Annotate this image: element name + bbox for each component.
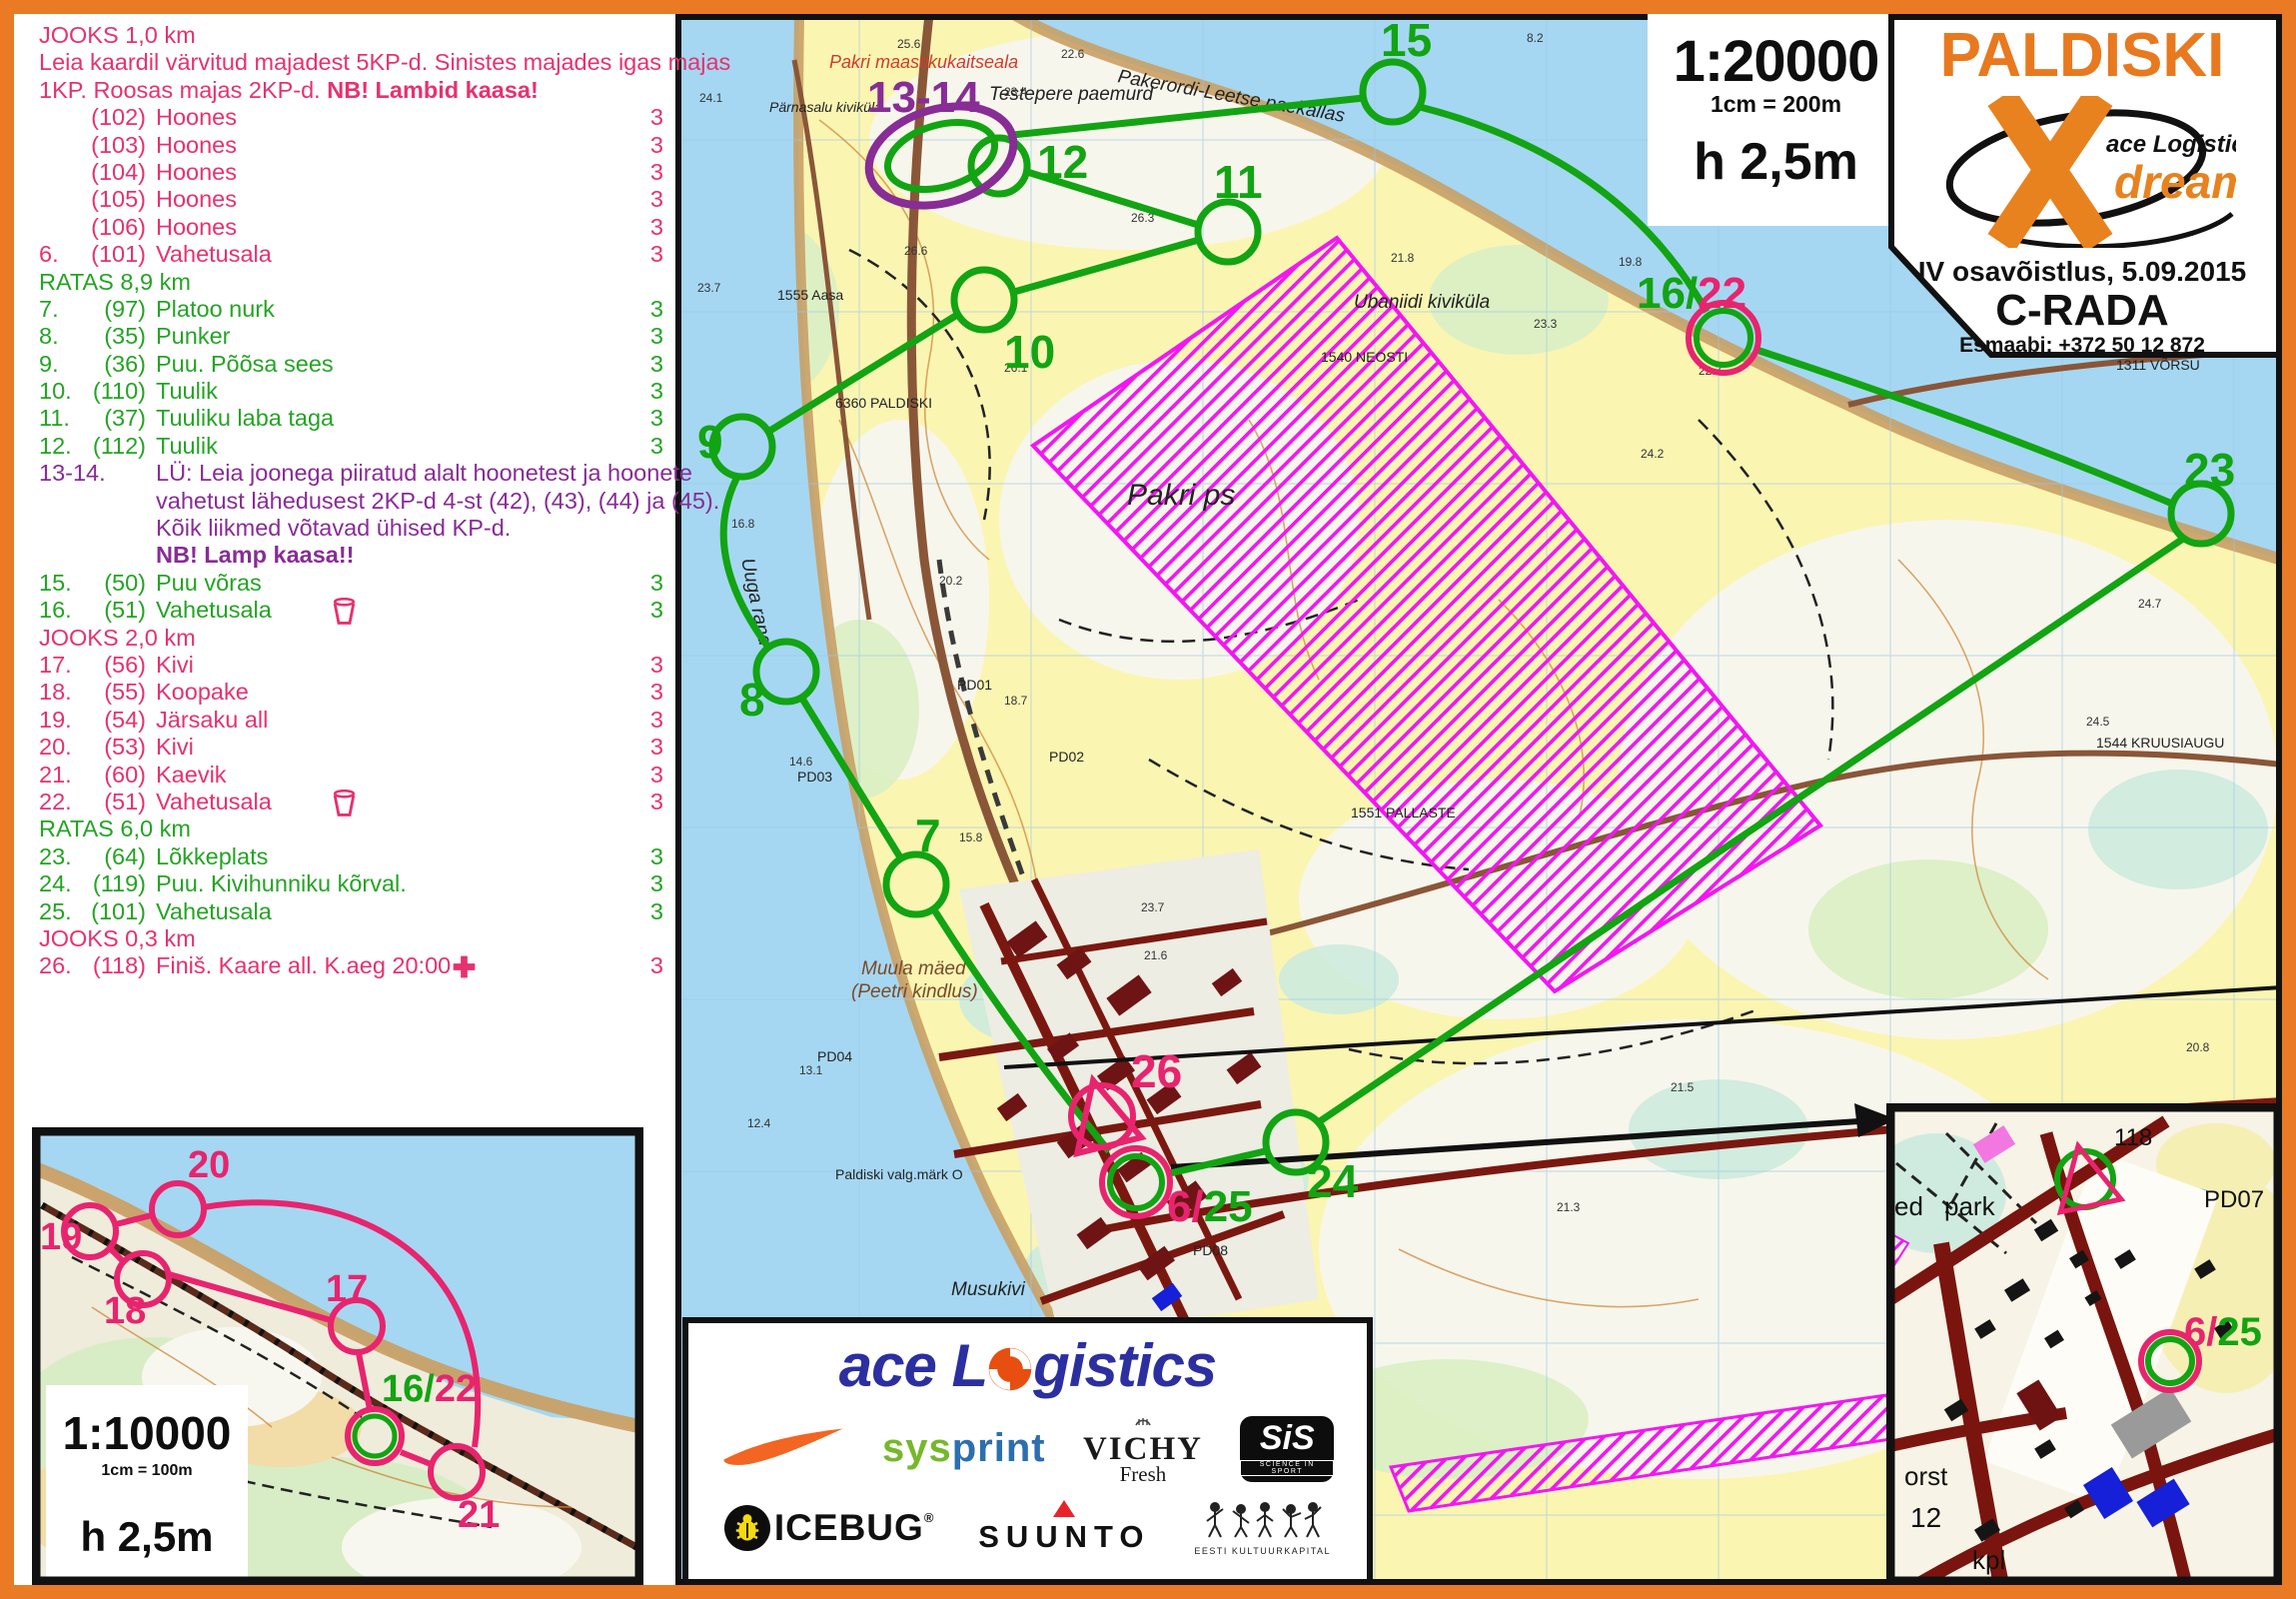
control-label-15: 15 xyxy=(1381,14,1432,66)
kultuurkapital-logo: EESTI KULTUURKAPITAL xyxy=(1194,1499,1331,1556)
label-pd07: PD07 xyxy=(2204,1186,2264,1213)
control-label-7: 7 xyxy=(915,809,941,861)
course-row: 1KP. Roosas majas 2KP-d. NB! Lambid kaas… xyxy=(14,77,675,104)
label-ed: ed xyxy=(1894,1191,1923,1221)
label-pd08: PD08 xyxy=(1193,1242,1228,1258)
ace-swirl-icon xyxy=(987,1346,1033,1392)
label-kpl: kpl xyxy=(1972,1545,2005,1575)
spot-height: 23.7 xyxy=(1141,900,1165,914)
course-row: 7.(97)Platoo nurk3 xyxy=(14,296,675,323)
label-musukivi: Musukivi xyxy=(951,1279,1026,1300)
course-row: 12.(112)Tuulik3 xyxy=(14,433,675,460)
course-row: 22.(51)Vahetusala3 xyxy=(14,789,675,815)
spot-height: 23.7 xyxy=(697,281,721,295)
sis-wordmark: SiS xyxy=(1240,1416,1334,1460)
spot-height: 20.2 xyxy=(939,574,963,588)
label-pakri-ps: Pakri ps xyxy=(1127,479,1235,512)
control-label-13-14: 13-14 xyxy=(867,73,980,122)
ace-logo-pre: ace L xyxy=(839,1332,987,1399)
course-section-header: RATAS 8,9 km xyxy=(14,269,675,296)
label-pd01: PD01 xyxy=(957,677,992,693)
spot-height: 18.7 xyxy=(1004,694,1028,708)
spot-height: 21.6 xyxy=(1144,948,1168,962)
course-row: (102)Hoones3 xyxy=(14,104,675,131)
spot-height: 15.8 xyxy=(959,830,983,844)
control-label-6-25: 6/25 xyxy=(1167,1182,1253,1231)
sysprint-logo: sysprint xyxy=(882,1426,1046,1471)
sponsors-panel: ace Lgistics sysprint VICHY Fresh SiS SC… xyxy=(682,1317,1373,1585)
inset-contour-interval: h 2,5m xyxy=(80,1513,213,1560)
inset-map-coast: 19 20 18 17 21 16/22 1:10000 1cm = 100m … xyxy=(32,1127,643,1585)
vichy-crest-icon xyxy=(1132,1410,1154,1426)
spot-height: 14.6 xyxy=(789,755,813,769)
course-row: 25.(101)Vahetusala3 xyxy=(14,898,675,925)
sysprint-sys: sys xyxy=(882,1426,952,1470)
control-label-16-22: 16/22 xyxy=(1637,269,1746,318)
label-aasa: 1555 Aasa xyxy=(777,287,843,303)
label-park: park xyxy=(1944,1191,1996,1221)
icebug-bug-icon xyxy=(724,1505,770,1551)
screenshot-root: Pakri maastikukaitseala Testepere paemur… xyxy=(0,0,2296,1599)
control-label-8: 8 xyxy=(739,674,765,726)
nike-swoosh-icon xyxy=(721,1426,845,1472)
map-scale: 1:20000 xyxy=(1648,14,1904,95)
spot-height: 24.1 xyxy=(699,91,723,105)
icebug-logo: ICEBUG® xyxy=(724,1505,935,1551)
course-row: vahetust lähedusest 2KP-d 4-st (42), (43… xyxy=(14,488,675,515)
course-row: 6.(101)Vahetusala3 xyxy=(14,241,675,268)
course-row: 24.(119)Puu. Kivihunniku kõrval.3 xyxy=(14,870,675,897)
label-muula-1: Muula mäed xyxy=(861,958,967,979)
spot-height: 23.3 xyxy=(1534,317,1558,331)
icebug-wordmark: ICEBUG xyxy=(774,1507,924,1548)
course-row: Leia kaardil värvitud majadest 5KP-d. Si… xyxy=(14,49,675,76)
course-row: 17.(56)Kivi3 xyxy=(14,652,675,679)
label-ubaniidi: Ubaniidi kiviküla xyxy=(1354,292,1490,313)
control-label-26: 26 xyxy=(1131,1045,1182,1097)
course-row: 21.(60)Kaevik3 xyxy=(14,762,675,789)
vichy-logo: VICHY Fresh xyxy=(1083,1410,1203,1487)
spot-height: 24.2 xyxy=(1641,447,1665,461)
plus-icon xyxy=(452,954,477,979)
cup-icon xyxy=(332,790,357,817)
event-title: PALDISKI xyxy=(1888,20,2276,91)
cup-icon xyxy=(332,598,357,626)
spot-height: 23.4 xyxy=(1004,85,1028,99)
spot-height: 19.8 xyxy=(1619,255,1643,269)
spot-height: 24.7 xyxy=(2138,597,2162,611)
spot-height: 21.8 xyxy=(1391,251,1415,265)
control-label-23: 23 xyxy=(2184,444,2235,496)
course-row: 8.(35)Punker3 xyxy=(14,323,675,350)
control-label-10: 10 xyxy=(1004,326,1055,378)
logo-sub-text: dream xyxy=(2114,156,2236,208)
spot-height: 26.6 xyxy=(904,244,928,258)
course-row: NB! Lamp kaasa!! xyxy=(14,542,675,569)
ace-logo-post: gistics xyxy=(1033,1332,1216,1399)
label-valgmark: Paldiski valg.märk O xyxy=(835,1166,963,1182)
label-muula-2: (Peetri kindlus) xyxy=(851,981,978,1002)
spot-height: 20.8 xyxy=(2186,1040,2210,1054)
course-list: JOOKS 1,0 kmLeia kaardil värvitud majade… xyxy=(14,22,675,980)
label-parnasalu: Pärnasalu kiviküla xyxy=(769,99,882,115)
course-row: (105)Hoones3 xyxy=(14,186,675,213)
course-section-header: JOOKS 1,0 km xyxy=(14,22,675,49)
control-label-18: 18 xyxy=(104,1290,146,1332)
course-section-header: RATAS 6,0 km xyxy=(14,815,675,842)
label-kaitseala: Pakri maastikukaitseala xyxy=(829,52,1018,72)
course-row: 15.(50)Puu võras3 xyxy=(14,570,675,597)
inset-scale-ratio: 1cm = 100m xyxy=(101,1462,192,1479)
control-label-24: 24 xyxy=(1307,1155,1359,1207)
spot-height: 16.8 xyxy=(731,517,755,531)
event-header-panel: PALDISKI ace Logistics dream IV osavõist… xyxy=(1888,14,2282,358)
sis-logo: SiS SCIENCE IN SPORT xyxy=(1240,1416,1334,1482)
contour-interval: h 2,5m xyxy=(1648,132,1904,192)
course-row: 9.(36)Puu. Põõsa sees3 xyxy=(14,351,675,378)
course-row: 20.(53)Kivi3 xyxy=(14,734,675,761)
course-row: 10.(110)Tuulik3 xyxy=(14,378,675,405)
label-pallaste: 1551 PALLASTE xyxy=(1351,804,1456,820)
course-row: 23.(64)Lõkkeplats3 xyxy=(14,843,675,870)
kultuurkapital-wordmark: EESTI KULTUURKAPITAL xyxy=(1194,1546,1331,1556)
inset-scale: 1:10000 xyxy=(63,1407,232,1459)
inset-left-scale-box: 1:10000 1cm = 100m h 2,5m xyxy=(46,1385,248,1579)
sysprint-print: print xyxy=(952,1426,1046,1470)
course-row: 13-14.LÜ: Leia joonega piiratud alalt ho… xyxy=(14,460,675,487)
spot-height: 21.3 xyxy=(1557,1200,1581,1214)
label-pd02: PD02 xyxy=(1049,749,1084,765)
spot-height: 13.1 xyxy=(799,1063,823,1077)
label-paldiski-town: 6360 PALDISKI xyxy=(835,395,932,411)
course-name: C-RADA xyxy=(1888,286,2276,336)
ace-logistics-logo: ace Lgistics xyxy=(688,1331,1367,1400)
course-section-header: JOOKS 0,3 km xyxy=(14,925,675,952)
spot-height: 21.5 xyxy=(1671,1080,1695,1094)
course-row: 19.(54)Järsaku all3 xyxy=(14,707,675,734)
scale-box: 1:20000 1cm = 200m h 2,5m xyxy=(1648,14,1904,226)
sis-tagline: SCIENCE IN SPORT xyxy=(1240,1460,1334,1476)
spot-height: 22.6 xyxy=(1061,47,1085,61)
spot-height: 8.2 xyxy=(1527,31,1544,45)
control-label-21: 21 xyxy=(458,1494,500,1536)
label-orst: orst xyxy=(1904,1461,1948,1491)
label-pd03: PD03 xyxy=(797,769,832,785)
label-neosti: 1540 NEOSTI xyxy=(1321,349,1408,365)
course-row: (103)Hoones3 xyxy=(14,132,675,159)
course-row: (106)Hoones3 xyxy=(14,214,675,241)
logo-brand-text: ace Logistics xyxy=(2106,131,2236,158)
label-vorsu: 1311 VÕRSU xyxy=(2116,357,2200,373)
spot-height: 24.5 xyxy=(2086,715,2110,729)
spot-height: 12.4 xyxy=(747,1116,771,1130)
control-label-9: 9 xyxy=(697,416,723,468)
control-label-20: 20 xyxy=(188,1144,230,1186)
label-pd04: PD04 xyxy=(817,1048,852,1064)
suunto-wordmark: SUUNTO xyxy=(978,1519,1150,1555)
course-row: 16.(51)Vahetusala3 xyxy=(14,597,675,624)
suunto-logo: SUUNTO xyxy=(978,1500,1150,1555)
spot-height: 25.6 xyxy=(897,37,921,51)
xdream-logo: ace Logistics dream xyxy=(1936,96,2236,248)
label-kruusiaugu: 1544 KRUUSIAUGU xyxy=(2096,735,2224,751)
inset-map-town: ed park PD07 orst 12 kpl 118 6/25 xyxy=(1886,1103,2282,1585)
label-12: 12 xyxy=(1910,1502,1941,1533)
course-section-header: JOOKS 2,0 km xyxy=(14,625,675,652)
event-date: IV osavõistlus, 5.09.2015 xyxy=(1888,256,2276,288)
control-label-11: 11 xyxy=(1214,156,1263,208)
control-label-16-22: 16/22 xyxy=(382,1368,477,1410)
suunto-triangle-icon xyxy=(1053,1500,1075,1517)
first-aid-contact: Esmaabi: +372 50 12 872 xyxy=(1888,334,2276,358)
control-label-19: 19 xyxy=(40,1216,82,1258)
map-scale-ratio: 1cm = 200m xyxy=(1648,91,1904,118)
course-row: Kõik liikmed võtavad ühised KP-d. xyxy=(14,515,675,542)
icebug-reg-mark: ® xyxy=(924,1510,935,1525)
course-row: (104)Hoones3 xyxy=(14,159,675,186)
control-label-12: 12 xyxy=(1037,136,1088,188)
label-118: 118 xyxy=(2114,1124,2152,1151)
course-row: 18.(55)Koopake3 xyxy=(14,679,675,706)
control-label-17: 17 xyxy=(326,1268,368,1310)
course-row: 26.(118)Finiš. Kaare all. K.aeg 20:003 xyxy=(14,952,675,979)
course-row: 11.(37)Tuuliku laba taga3 xyxy=(14,405,675,432)
kultuurkapital-figures-icon xyxy=(1203,1499,1323,1539)
control-label-6-25: 6/25 xyxy=(2184,1310,2262,1354)
